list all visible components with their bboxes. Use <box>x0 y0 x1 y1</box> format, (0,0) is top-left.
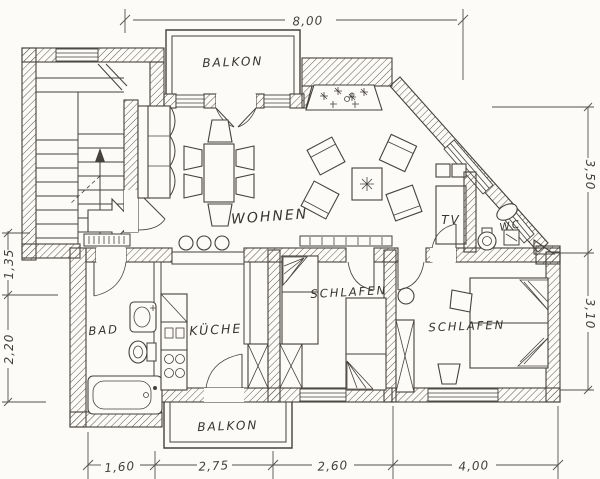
planter <box>306 85 382 110</box>
dim-top: 8,00 <box>292 13 323 28</box>
toilet <box>478 228 496 250</box>
seating-group <box>301 134 422 221</box>
label-tv: TV <box>441 213 461 227</box>
sofa <box>138 106 175 198</box>
bathroom: BAD <box>88 248 162 414</box>
floor-plan-canvas: BALKON <box>0 0 600 479</box>
bathtub <box>88 376 162 414</box>
stool-1 <box>450 290 472 312</box>
floor-plan-page: BALKON <box>0 0 600 479</box>
dim-left-upper: 1,35 <box>2 249 16 280</box>
dim-bottom-1: 1,60 <box>104 459 136 475</box>
radiator <box>84 234 130 246</box>
dim-bottom-4: 4,00 <box>458 458 489 474</box>
dim-left-lower: 2,20 <box>2 334 16 365</box>
counter <box>172 236 244 264</box>
bedroom-right: SCHLAFEN <box>396 262 548 392</box>
stool-2 <box>438 364 460 384</box>
dim-right-lower: 3,10 <box>583 299 597 330</box>
dim-bottom-2: 2,75 <box>198 458 229 474</box>
kitchen: KÜCHE <box>161 262 302 390</box>
kitchen-counter <box>161 294 187 390</box>
balcony-bottom: BALKON <box>164 402 292 448</box>
planter-niche <box>302 58 392 110</box>
living-window-left <box>176 95 204 107</box>
wardrobe <box>396 320 414 392</box>
bedroom-window <box>428 389 498 401</box>
room-label-kueche: KÜCHE <box>189 320 243 339</box>
bath-sink <box>130 302 156 332</box>
stairwell-window <box>56 49 98 61</box>
living-room-north-wall <box>164 58 392 127</box>
dim-bottom-3: 2,60 <box>317 458 348 474</box>
room-label-wohnen: WOHNEN <box>231 206 309 227</box>
room-label-schlafen-right: SCHLAFEN <box>428 318 505 335</box>
living-room: WOHNEN <box>138 93 422 264</box>
stool-round <box>398 288 414 304</box>
sideboard <box>300 236 392 246</box>
living-window-right <box>264 95 290 107</box>
bed-single-2 <box>346 298 386 390</box>
kitchen-window <box>300 389 346 401</box>
bath-toilet <box>129 341 156 363</box>
room-label-balkon-top: BALKON <box>202 54 264 70</box>
dim-right-upper: 3,50 <box>583 160 597 191</box>
balcony-top: BALKON <box>166 30 300 94</box>
room-label-bad: BAD <box>88 322 120 338</box>
room-label-balkon-bottom: BALKON <box>197 418 259 434</box>
